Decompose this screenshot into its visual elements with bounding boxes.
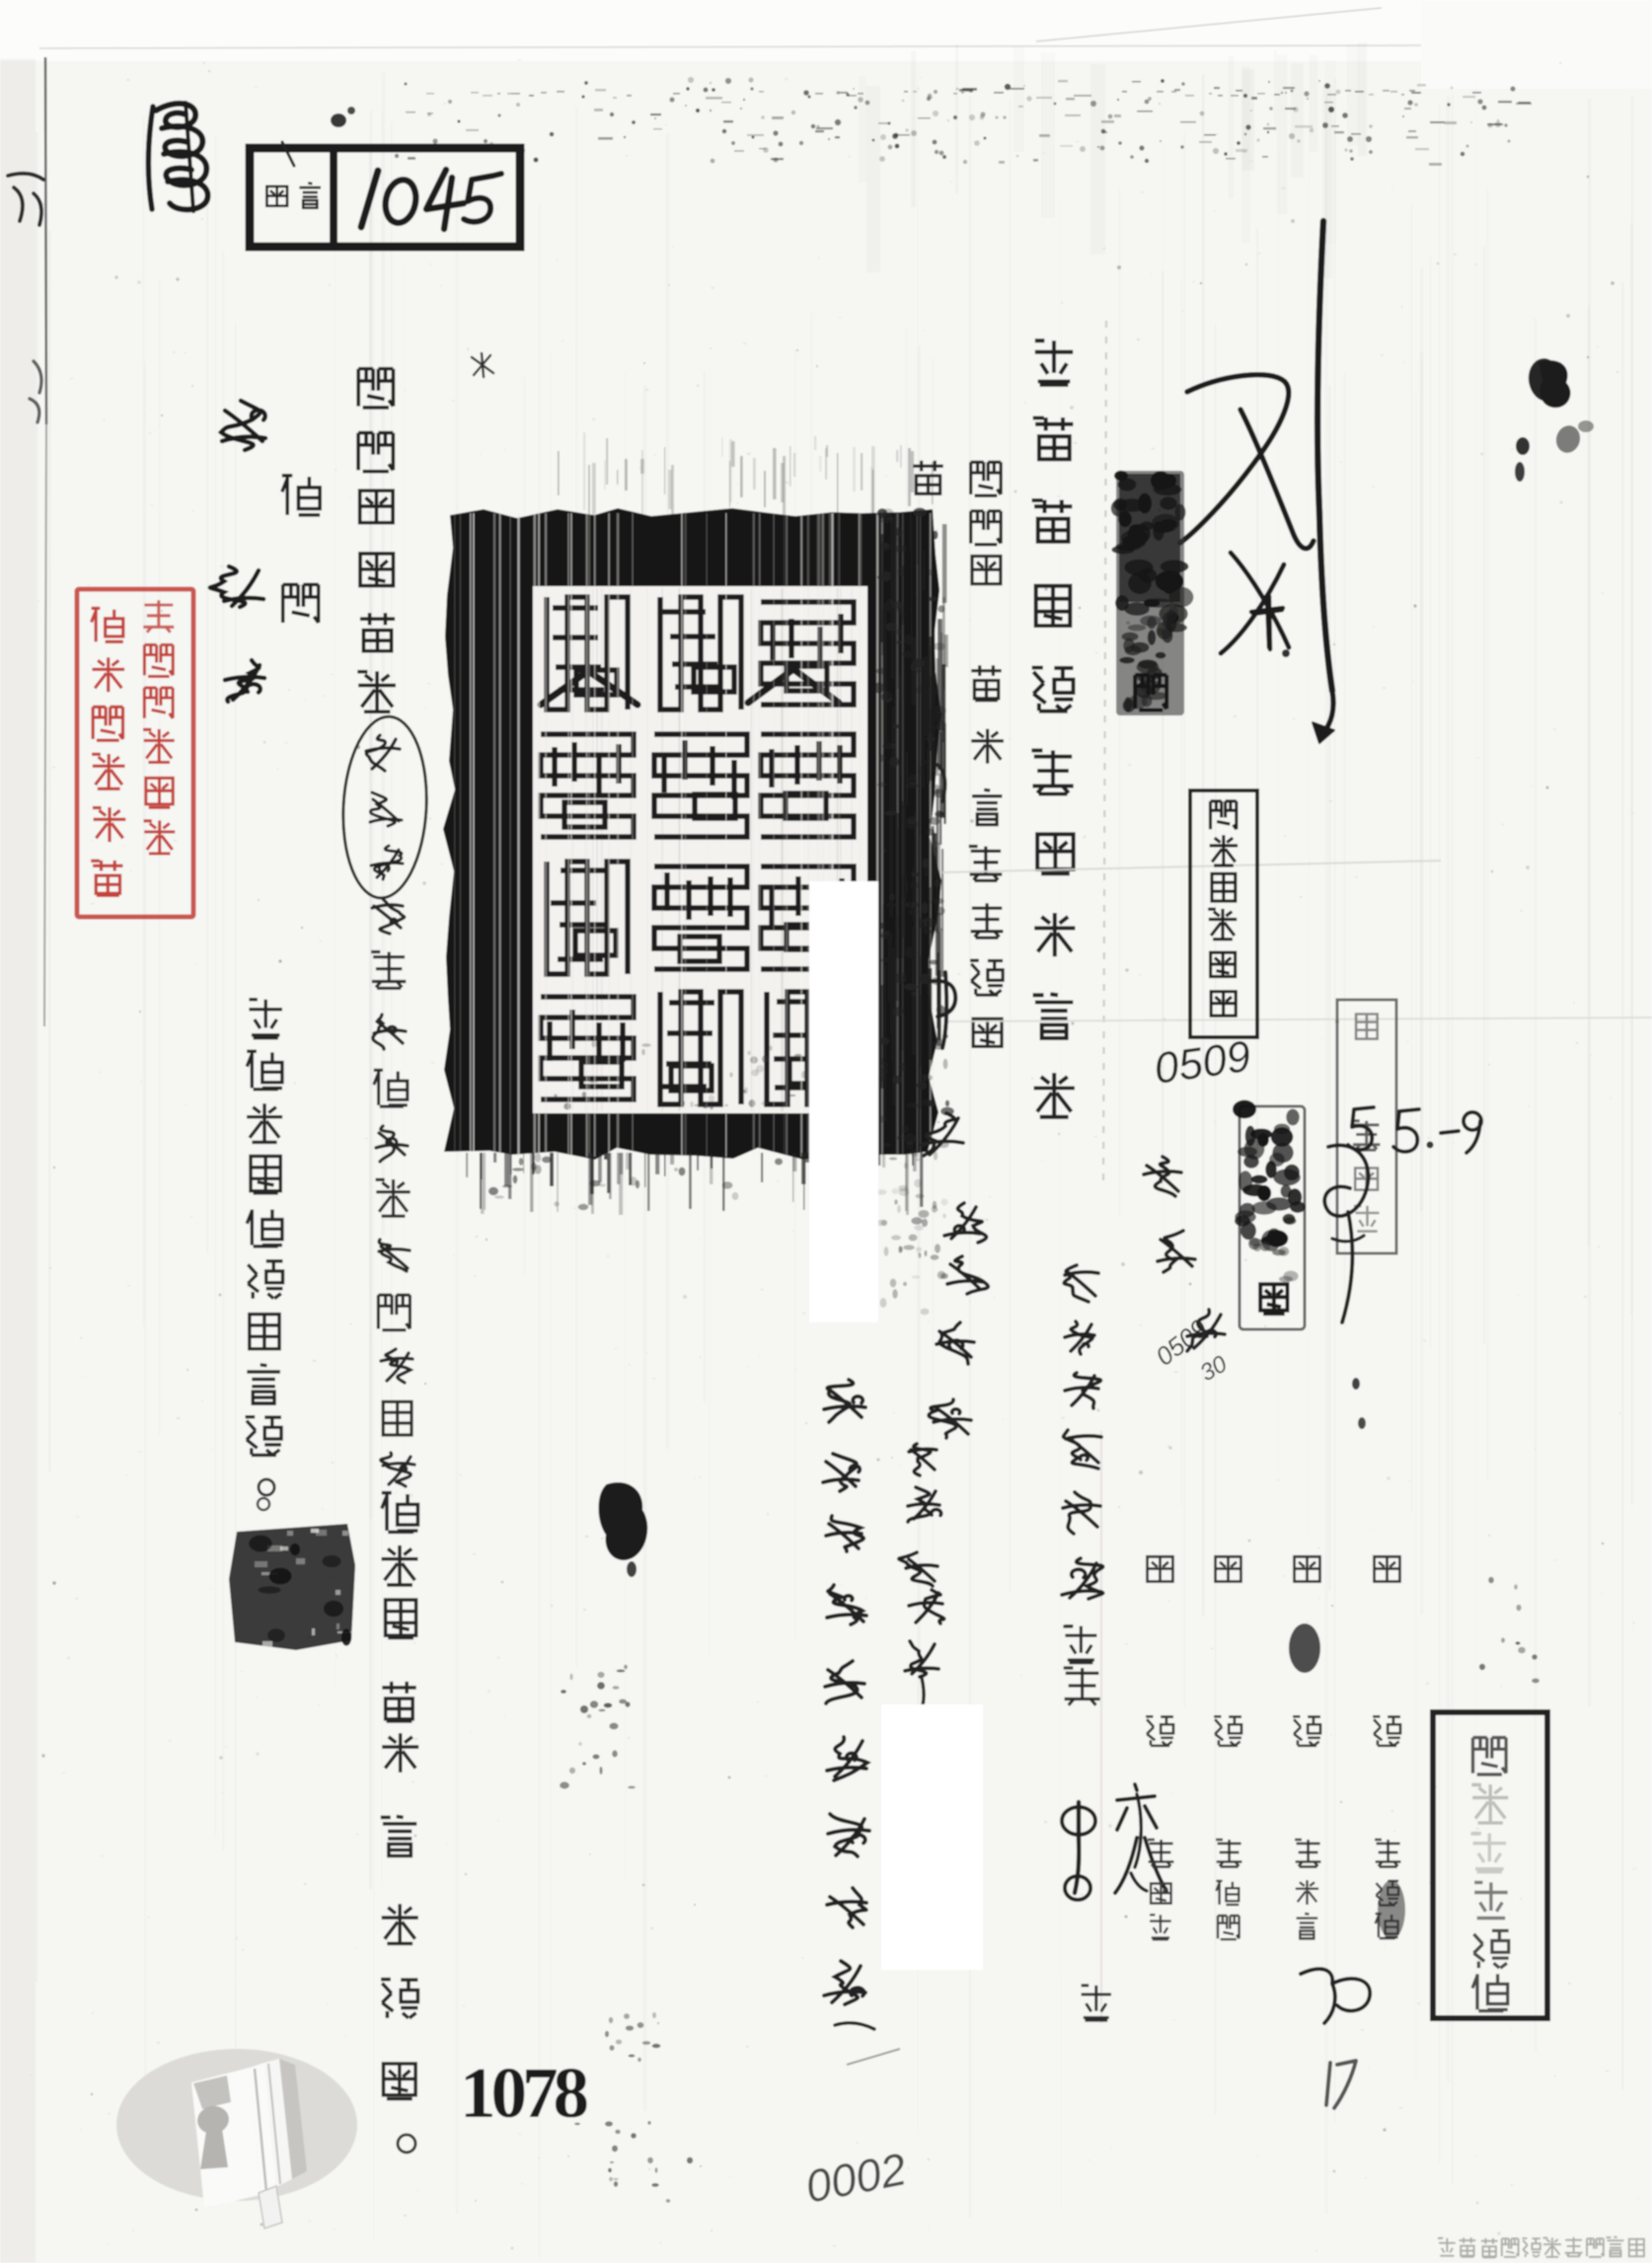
- svg-text:1078: 1078: [460, 2053, 588, 2133]
